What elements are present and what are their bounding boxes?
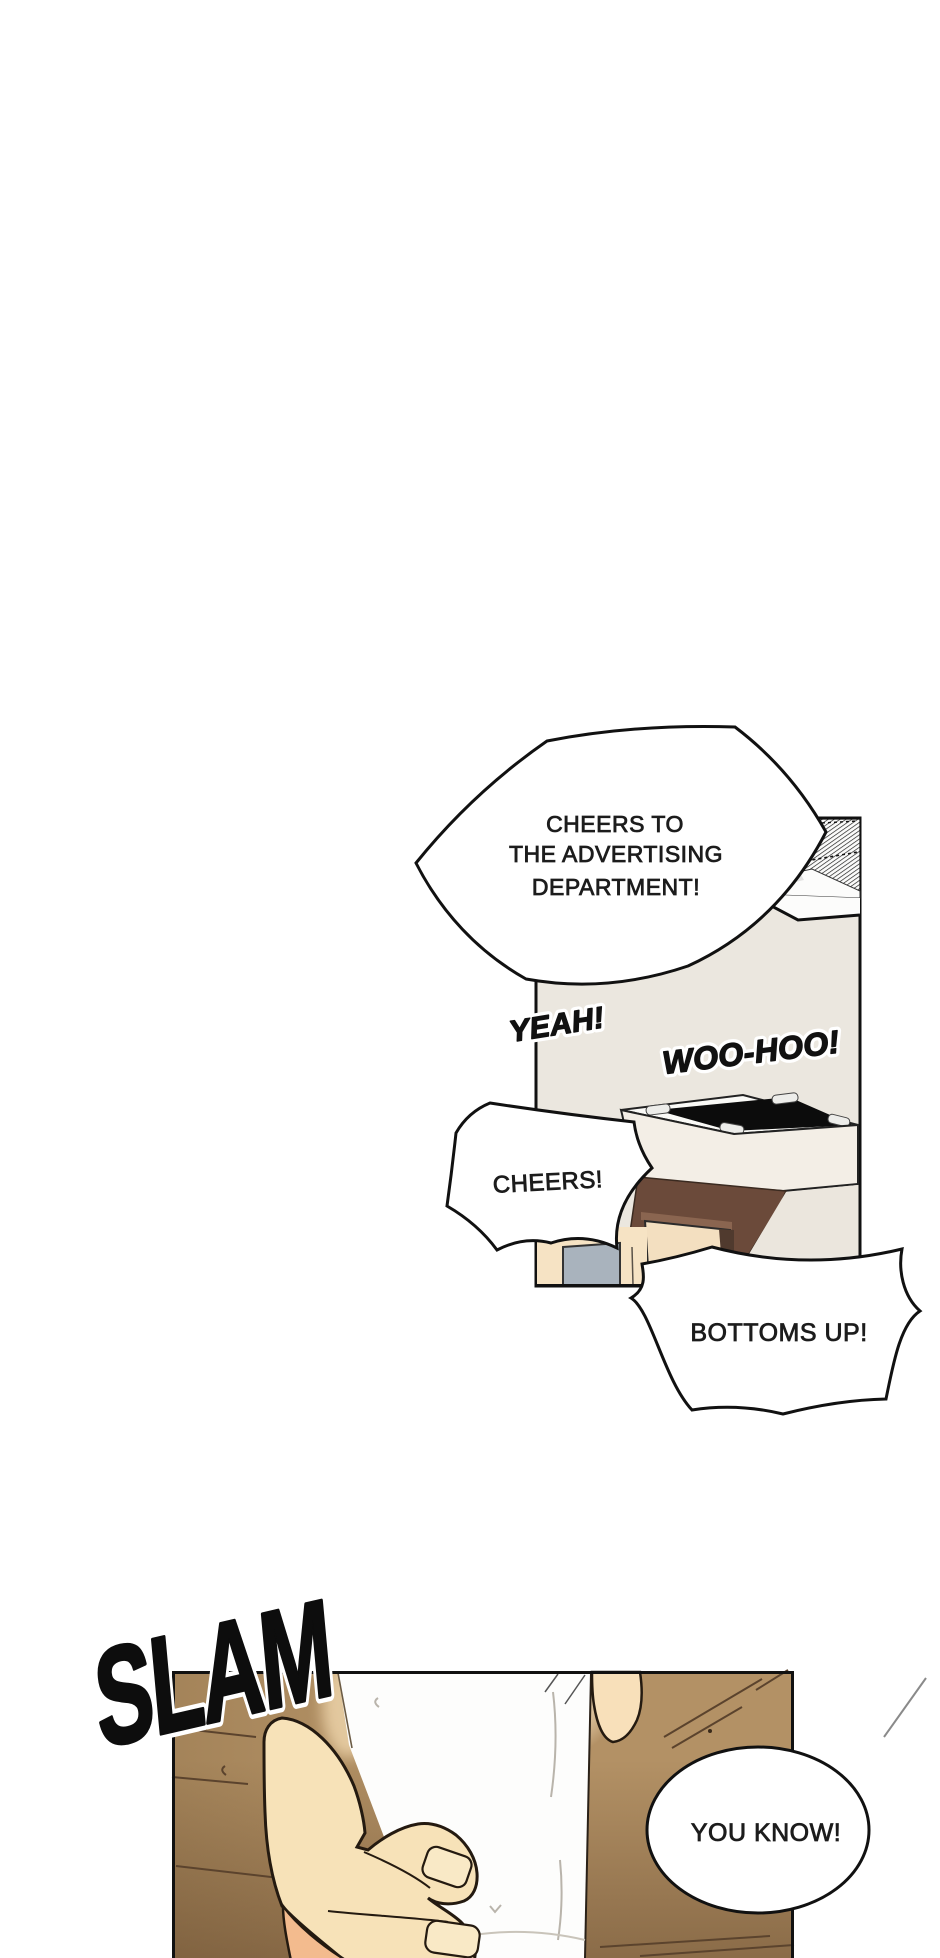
svg-text:THE ADVERTISING: THE ADVERTISING xyxy=(509,841,723,867)
svg-text:CHEERS TO: CHEERS TO xyxy=(546,811,684,837)
svg-text:DEPARTMENT!: DEPARTMENT! xyxy=(532,874,700,900)
svg-text:BOTTOMS UP!: BOTTOMS UP! xyxy=(690,1319,867,1347)
svg-text:CHEERS!: CHEERS! xyxy=(492,1166,603,1199)
svg-text:YOU KNOW!: YOU KNOW! xyxy=(691,1819,841,1847)
